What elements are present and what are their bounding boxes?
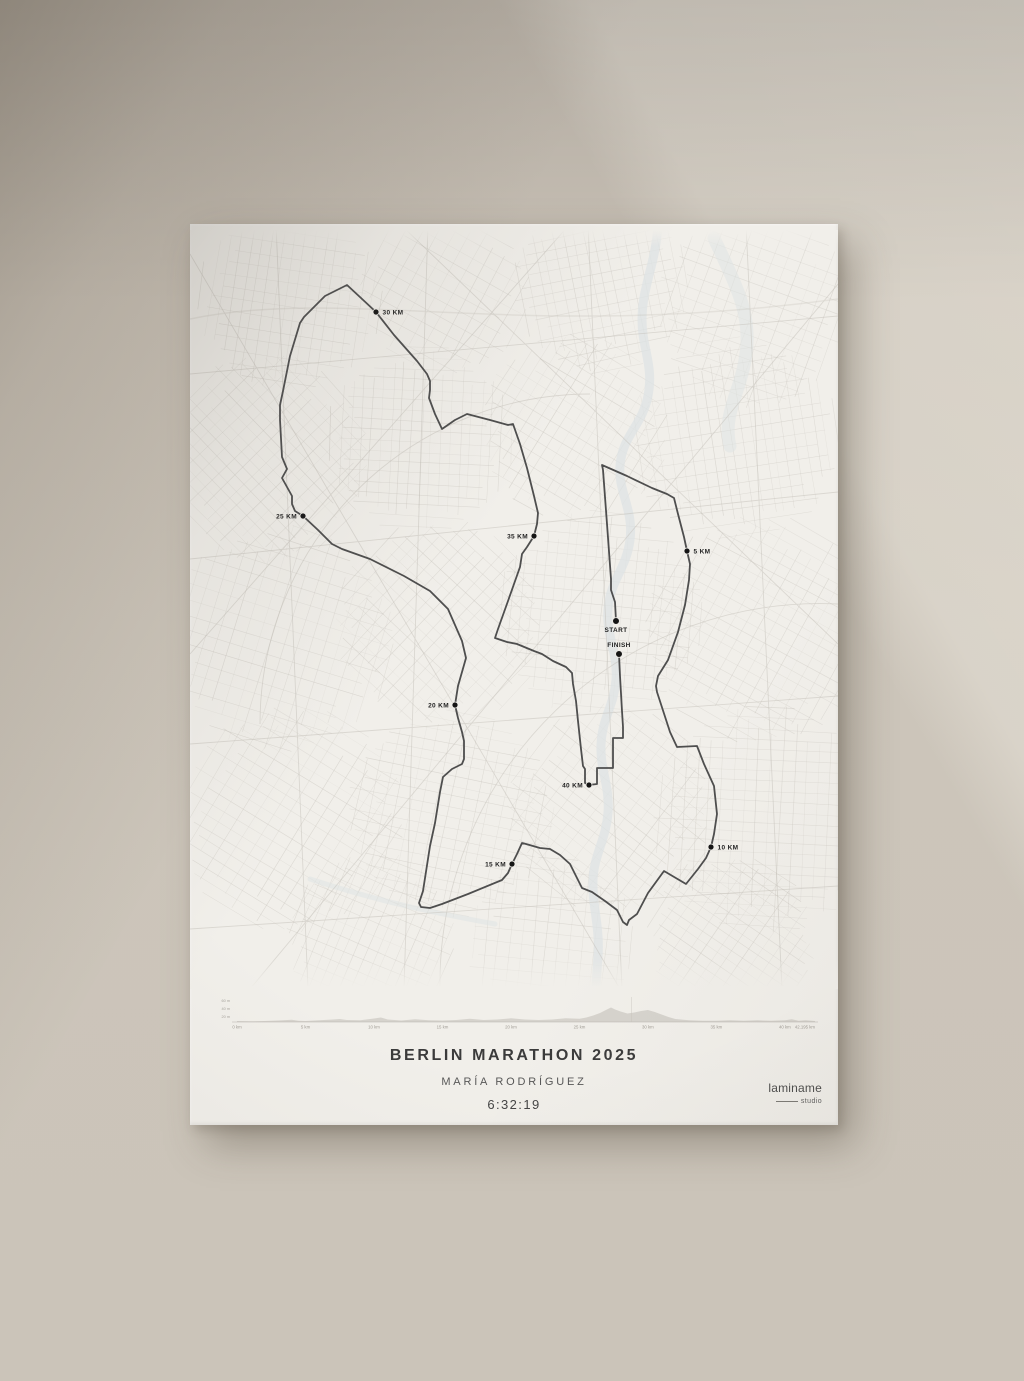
elevation-area — [237, 1008, 815, 1023]
marker-dot — [509, 861, 515, 867]
poster: 0 km5 km10 km15 km20 km25 km30 km35 km40… — [190, 224, 838, 1125]
marker-dot — [452, 702, 458, 708]
y-tick-label: 40 m — [222, 1007, 230, 1011]
marker-label: 10 KM — [718, 844, 739, 851]
marker-label: 15 KM — [485, 861, 506, 868]
runner-name: MARÍA RODRÍGUEZ — [190, 1077, 838, 1088]
marker-dot — [708, 844, 714, 850]
marker-km20: 20 KM — [428, 702, 458, 709]
map-fade-bottom — [190, 959, 838, 989]
marker-km25: 25 KM — [276, 513, 306, 520]
marker-dot — [373, 309, 379, 315]
y-tick-label: 20 m — [222, 1015, 230, 1019]
x-tick-label: 15 km — [437, 1025, 449, 1030]
marker-label: START — [605, 627, 628, 634]
marker-dot — [586, 782, 592, 788]
title-block: BERLIN MARATHON 2025 MARÍA RODRÍGUEZ 6:3… — [190, 1046, 838, 1111]
x-tick-label: 40 km — [779, 1025, 791, 1030]
marker-label: 40 KM — [562, 782, 583, 789]
marker-label: FINISH — [607, 642, 630, 649]
marker-label: 20 KM — [428, 702, 449, 709]
y-tick-label: 60 m — [222, 999, 230, 1003]
marker-label: 35 KM — [507, 533, 528, 540]
marker-label: 5 KM — [694, 548, 711, 555]
brand-sub-row: studio — [768, 1098, 822, 1105]
map-fade-top — [190, 230, 838, 246]
brand-logo: laminame studio — [768, 1082, 822, 1105]
marker-km40: 40 KM — [562, 782, 592, 789]
x-tick-label: 35 km — [711, 1025, 723, 1030]
poster-title: BERLIN MARATHON 2025 — [190, 1046, 838, 1065]
elevation-chart: 0 km5 km10 km15 km20 km25 km30 km35 km40… — [222, 997, 818, 1030]
marker-dot — [684, 548, 690, 554]
marker-label: 30 KM — [383, 309, 404, 316]
finish-time: 6:32:19 — [190, 1098, 838, 1111]
x-tick-label: 30 km — [642, 1025, 654, 1030]
brand-name: laminame — [768, 1082, 822, 1094]
marker-dot — [613, 618, 620, 625]
wall-background: 0 km5 km10 km15 km20 km25 km30 km35 km40… — [0, 0, 1024, 1381]
poster-map-svg: 0 km5 km10 km15 km20 km25 km30 km35 km40… — [190, 224, 838, 1125]
brand-sub: studio — [801, 1098, 822, 1105]
marker-label: 25 KM — [276, 513, 297, 520]
x-tick-label: 20 km — [505, 1025, 517, 1030]
x-tick-label: 0 km — [232, 1025, 242, 1030]
marker-dot — [300, 513, 306, 519]
marker-dot — [616, 651, 623, 658]
marker-dot — [531, 533, 537, 539]
x-tick-label: 10 km — [368, 1025, 380, 1030]
x-tick-label: 25 km — [574, 1025, 586, 1030]
x-tick-label: 5 km — [301, 1025, 311, 1030]
brand-underline — [776, 1101, 798, 1102]
x-tick-label: 42.195 km — [795, 1025, 815, 1030]
marker-km5: 5 KM — [684, 548, 710, 555]
